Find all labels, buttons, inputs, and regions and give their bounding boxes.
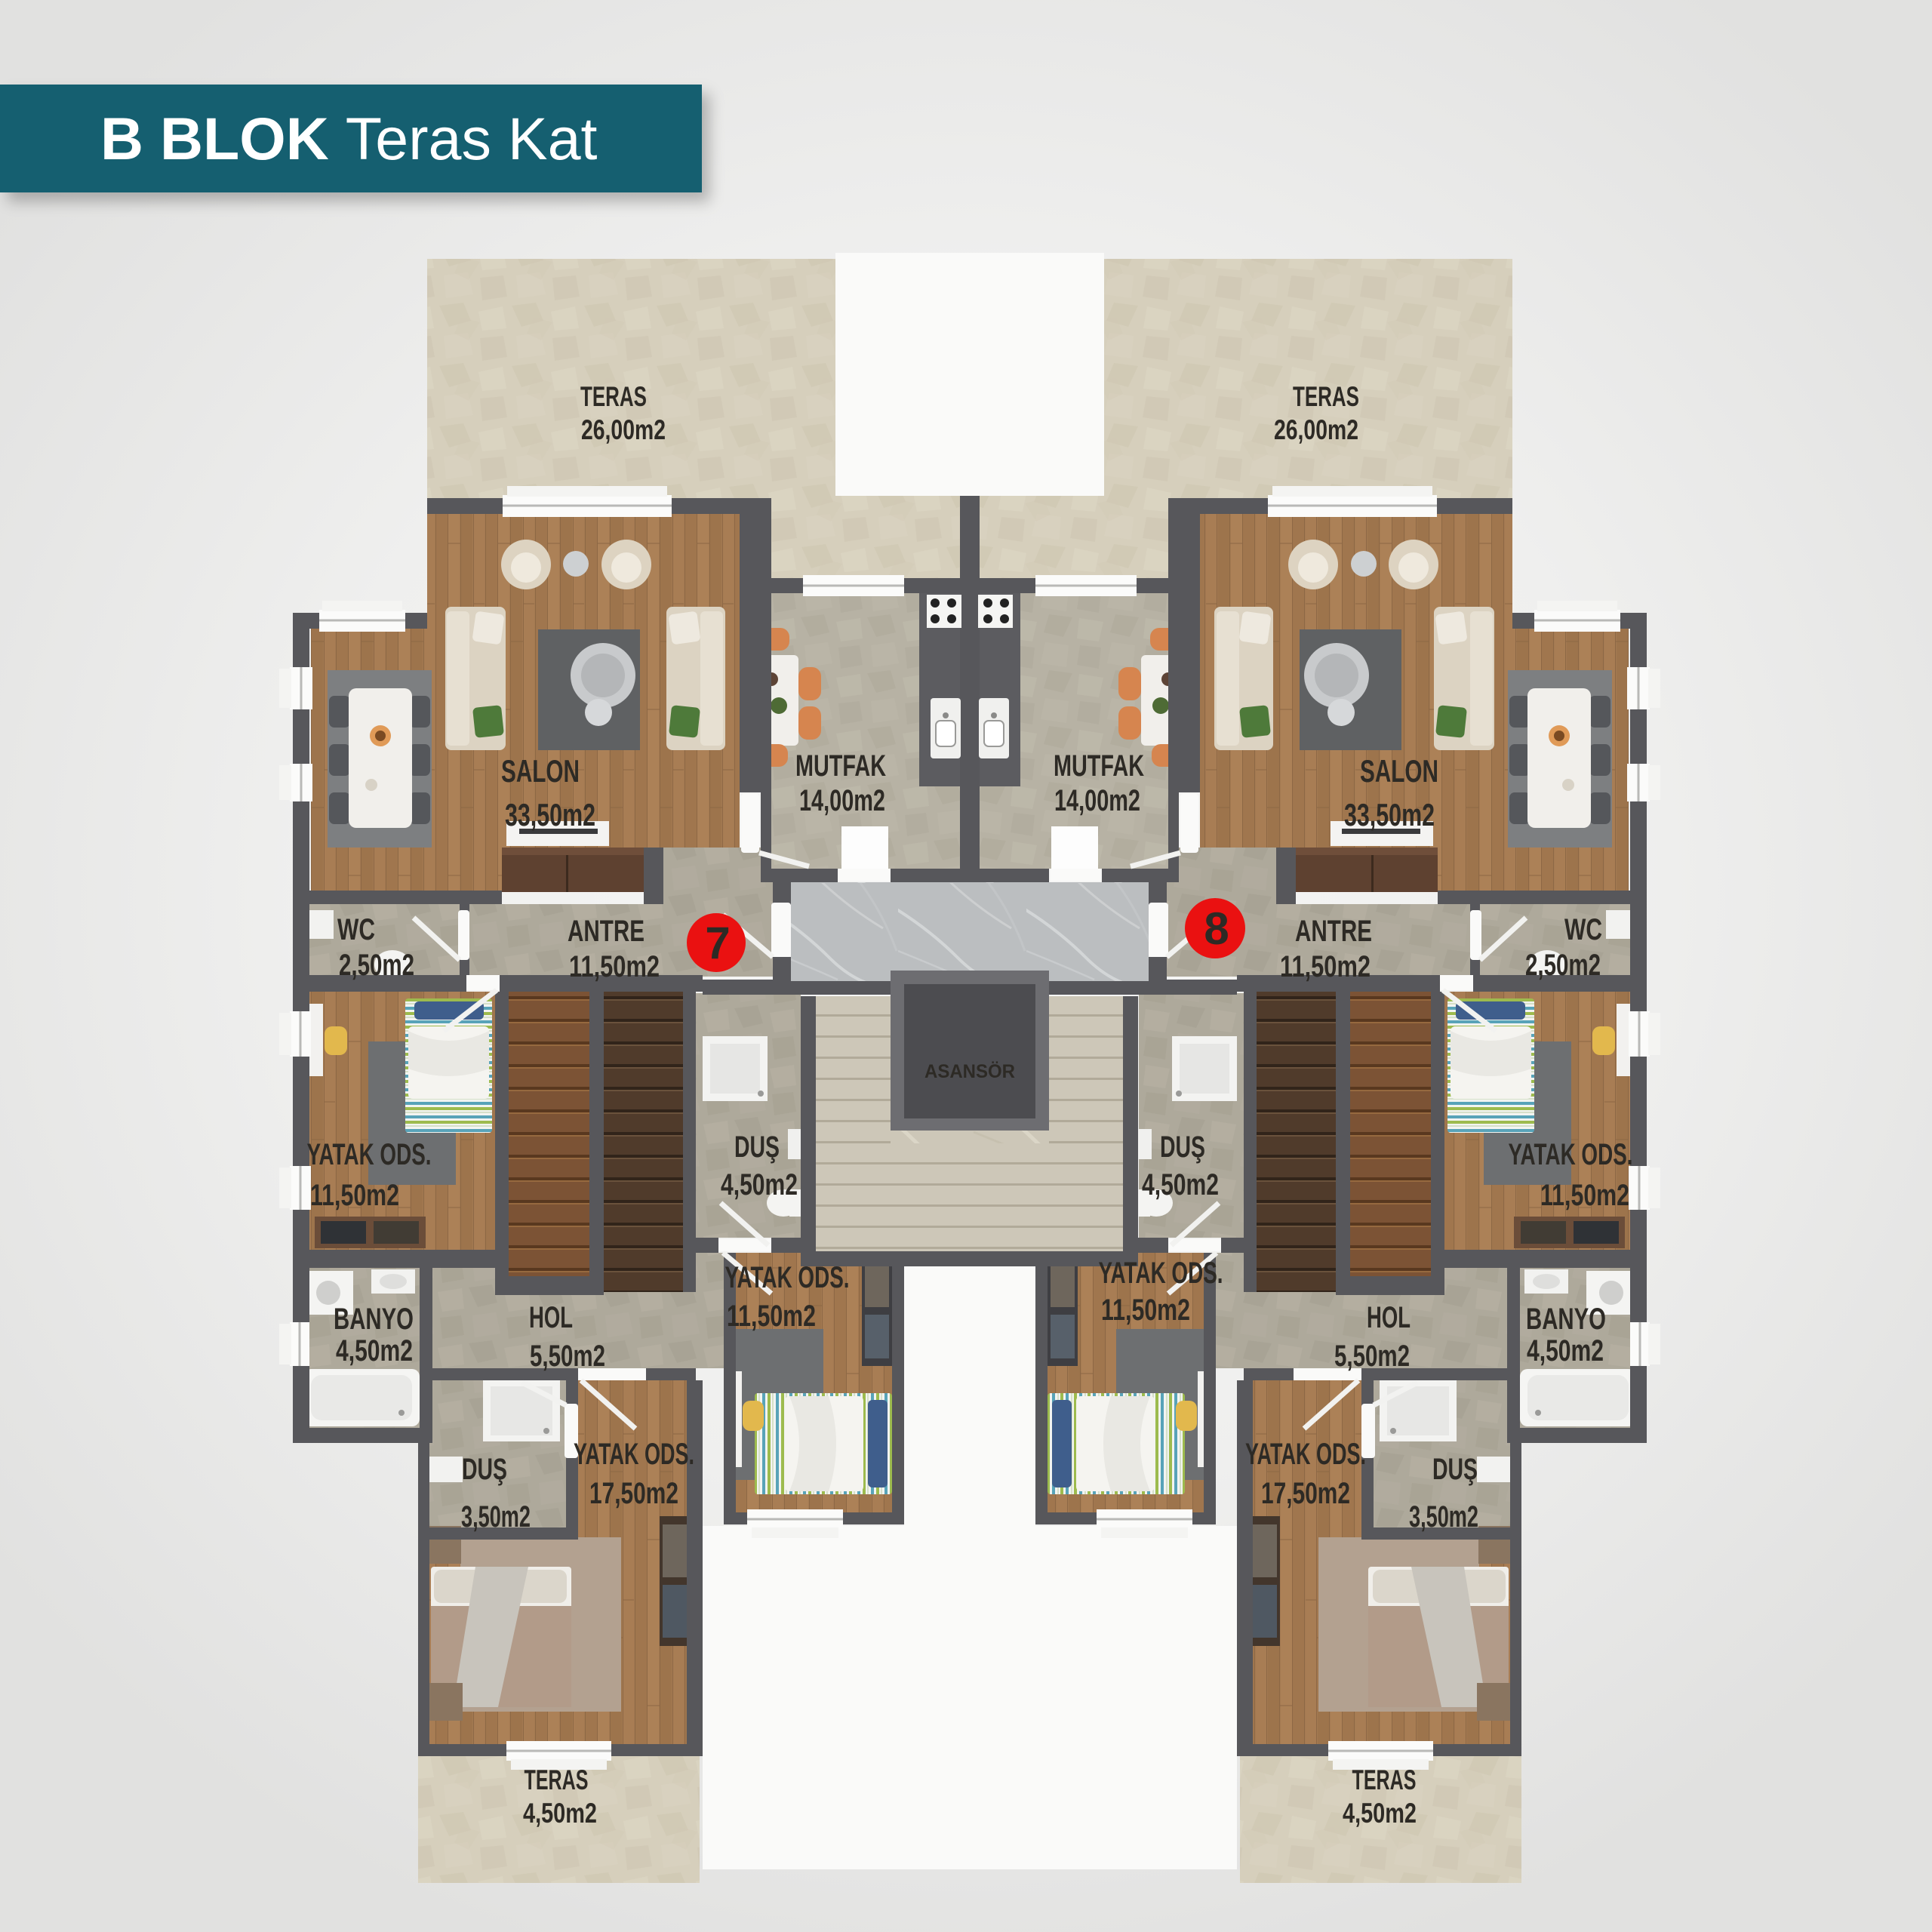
svg-text:YATAK ODS.: YATAK ODS. [307,1138,432,1171]
svg-text:11,50m2: 11,50m2 [1540,1179,1629,1212]
svg-text:SALON: SALON [1360,753,1438,789]
svg-text:14,00m2: 14,00m2 [799,784,885,817]
svg-text:11,50m2: 11,50m2 [569,950,660,983]
svg-text:26,00m2: 26,00m2 [1274,414,1358,445]
svg-text:TERAS: TERAS [525,1764,589,1795]
svg-text:SALON: SALON [501,753,580,789]
svg-text:14,00m2: 14,00m2 [1054,784,1140,817]
svg-text:33,50m2: 33,50m2 [1344,797,1435,832]
svg-text:2,50m2: 2,50m2 [339,949,414,982]
svg-text:BANYO: BANYO [1526,1303,1606,1336]
svg-text:4,50m2: 4,50m2 [1527,1334,1604,1367]
svg-text:7: 7 [705,918,730,968]
svg-text:3,50m2: 3,50m2 [461,1500,531,1534]
svg-text:11,50m2: 11,50m2 [310,1179,399,1212]
svg-text:WC: WC [1564,913,1602,946]
svg-text:4,50m2: 4,50m2 [1142,1168,1219,1201]
svg-text:8: 8 [1204,903,1229,954]
svg-text:5,50m2: 5,50m2 [1334,1340,1410,1373]
svg-text:ANTRE: ANTRE [1295,915,1372,948]
svg-text:4,50m2: 4,50m2 [523,1798,597,1829]
svg-text:11,50m2: 11,50m2 [1280,950,1371,983]
svg-text:17,50m2: 17,50m2 [1261,1477,1350,1510]
svg-text:DUŞ: DUŞ [462,1453,507,1486]
svg-text:HOL: HOL [1367,1301,1411,1334]
svg-text:TERAS: TERAS [1293,381,1359,412]
svg-text:ASANSÖR: ASANSÖR [924,1060,1015,1082]
svg-text:DUŞ: DUŞ [1160,1131,1205,1164]
svg-text:BANYO: BANYO [334,1303,414,1336]
svg-text:4,50m2: 4,50m2 [1343,1798,1417,1829]
svg-text:11,50m2: 11,50m2 [727,1300,816,1333]
svg-text:YATAK ODS.: YATAK ODS. [1509,1138,1633,1171]
svg-text:TERAS: TERAS [1352,1764,1417,1795]
svg-text:4,50m2: 4,50m2 [721,1168,798,1201]
svg-text:5,50m2: 5,50m2 [530,1340,605,1373]
svg-text:DUŞ: DUŞ [1432,1453,1478,1486]
svg-text:YATAK ODS.: YATAK ODS. [1099,1257,1223,1290]
svg-text:11,50m2: 11,50m2 [1101,1294,1190,1327]
svg-text:MUTFAK: MUTFAK [1054,749,1144,783]
svg-text:YATAK ODS.: YATAK ODS. [725,1261,850,1294]
svg-text:17,50m2: 17,50m2 [589,1477,678,1510]
svg-text:YATAK ODS.: YATAK ODS. [574,1438,694,1471]
svg-text:YATAK ODS.: YATAK ODS. [1245,1438,1366,1471]
svg-text:4,50m2: 4,50m2 [336,1334,413,1367]
svg-text:2,50m2: 2,50m2 [1525,949,1601,982]
svg-text:WC: WC [337,913,375,946]
svg-text:33,50m2: 33,50m2 [505,797,595,832]
svg-text:HOL: HOL [529,1301,573,1334]
svg-text:MUTFAK: MUTFAK [795,749,886,783]
svg-text:26,00m2: 26,00m2 [581,414,666,445]
svg-text:3,50m2: 3,50m2 [1409,1500,1478,1534]
svg-text:ANTRE: ANTRE [568,915,645,948]
svg-text:DUŞ: DUŞ [734,1131,780,1164]
svg-text:TERAS: TERAS [580,381,647,412]
